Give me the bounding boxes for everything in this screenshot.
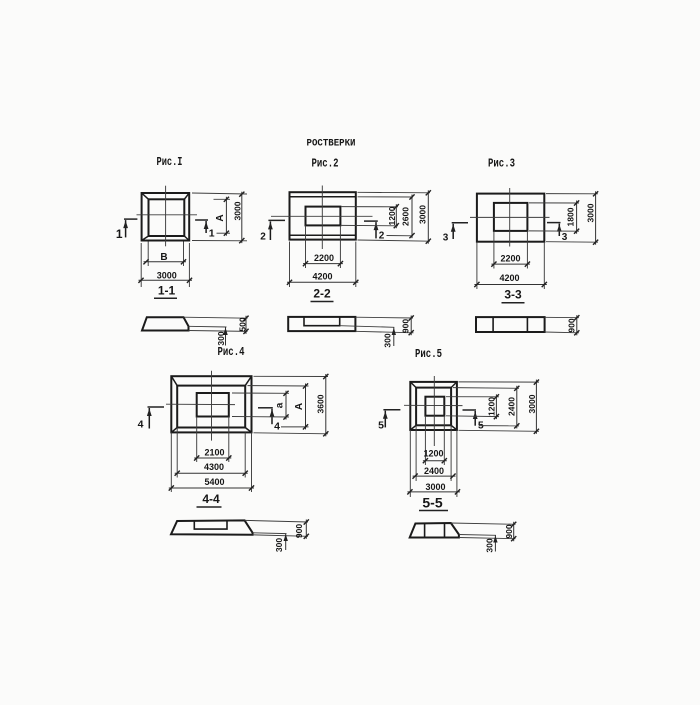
svg-text:3000: 3000 [418, 205, 428, 224]
svg-text:2400: 2400 [507, 397, 517, 416]
svg-text:1: 1 [209, 228, 215, 240]
svg-text:5: 5 [378, 420, 384, 432]
svg-text:A: A [215, 214, 226, 221]
svg-text:4-4: 4-4 [202, 492, 220, 506]
svg-text:Рис.I: Рис.I [157, 156, 183, 169]
svg-text:Рис.2: Рис.2 [312, 158, 339, 171]
svg-text:РОСТВЕРКИ: РОСТВЕРКИ [307, 138, 356, 150]
svg-text:3000: 3000 [157, 271, 177, 281]
svg-text:a: a [274, 402, 285, 408]
svg-text:900: 900 [294, 524, 304, 538]
svg-text:500: 500 [237, 317, 247, 331]
svg-text:2: 2 [379, 231, 385, 242]
svg-text:900: 900 [504, 524, 514, 538]
svg-text:300: 300 [382, 333, 392, 347]
svg-text:1-1: 1-1 [158, 284, 176, 298]
svg-text:Рис.4: Рис.4 [218, 346, 245, 359]
svg-text:1200: 1200 [387, 206, 397, 225]
svg-text:300: 300 [274, 538, 284, 552]
svg-text:3000: 3000 [425, 482, 445, 492]
svg-text:2100: 2100 [204, 447, 224, 457]
svg-text:2200: 2200 [314, 253, 334, 263]
svg-text:3-3: 3-3 [504, 288, 522, 302]
svg-text:4: 4 [138, 419, 144, 431]
svg-text:1: 1 [116, 227, 123, 241]
svg-text:2400: 2400 [424, 466, 444, 476]
svg-text:1200: 1200 [423, 448, 443, 458]
svg-text:900: 900 [567, 318, 577, 332]
svg-text:2600: 2600 [401, 207, 411, 226]
svg-text:Рис.3: Рис.3 [488, 158, 515, 171]
svg-text:4200: 4200 [312, 272, 332, 282]
svg-text:5400: 5400 [204, 477, 224, 487]
svg-text:1800: 1800 [565, 207, 575, 226]
svg-text:4300: 4300 [204, 462, 224, 472]
svg-text:1200: 1200 [487, 397, 497, 416]
svg-text:300: 300 [484, 538, 494, 552]
svg-text:4: 4 [274, 421, 280, 433]
svg-text:3000: 3000 [585, 203, 595, 222]
svg-text:4200: 4200 [499, 273, 519, 283]
svg-text:3: 3 [562, 232, 568, 243]
svg-text:3: 3 [443, 233, 449, 244]
svg-text:3600: 3600 [316, 394, 326, 413]
svg-text:Рис.5: Рис.5 [415, 348, 442, 361]
svg-text:2: 2 [260, 232, 266, 243]
svg-text:300: 300 [216, 331, 226, 345]
svg-text:3000: 3000 [527, 394, 537, 413]
svg-text:B: B [160, 252, 167, 263]
svg-text:A: A [294, 403, 305, 410]
svg-text:5-5: 5-5 [422, 494, 442, 510]
svg-text:2-2: 2-2 [313, 287, 331, 301]
svg-text:900: 900 [400, 319, 410, 333]
svg-text:3000: 3000 [232, 201, 242, 220]
svg-text:2200: 2200 [500, 253, 520, 263]
